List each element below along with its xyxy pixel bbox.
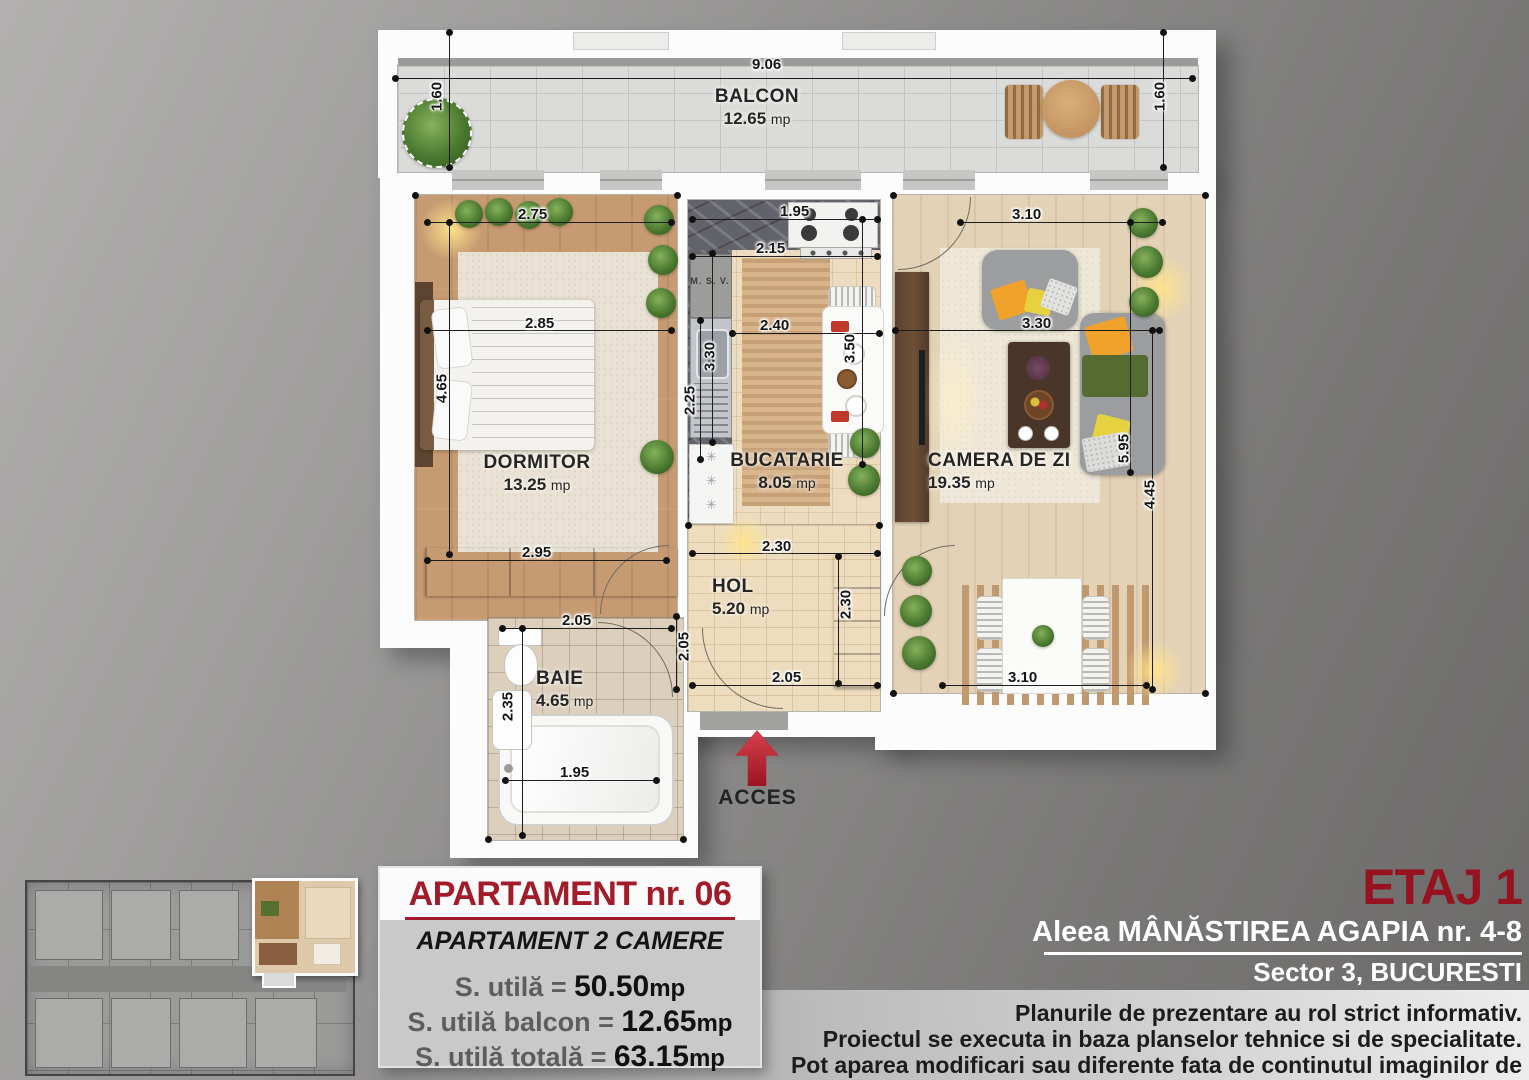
dim-dot xyxy=(674,192,681,199)
plant xyxy=(1129,287,1159,317)
tv-glow xyxy=(925,330,985,470)
entry-threshold xyxy=(700,712,788,730)
dim-label-dormitor-top: 2.75 xyxy=(518,206,547,223)
dim-label-hol-top: 2.30 xyxy=(762,538,791,555)
dim-label-dormitor-bottom: 2.95 xyxy=(522,544,551,561)
dim-label-living-inner: 5.95 xyxy=(1116,427,1133,471)
overview-highlight-baie xyxy=(259,943,297,965)
dim-label-living-outer: 4.45 xyxy=(1142,473,1159,517)
burner xyxy=(801,225,817,241)
apartment-info-box: APARTAMENT nr. 06 APARTAMENT 2 CAMERE S.… xyxy=(378,866,762,1068)
dim-label-bucatarie-right: 3.50 xyxy=(842,327,859,371)
table-plant xyxy=(1032,625,1054,647)
bowl xyxy=(837,369,857,389)
overview-room xyxy=(255,998,317,1068)
area-row-utila: S. utilă = 50.50mp xyxy=(380,970,760,1005)
floor-plan-overview-thumbnail xyxy=(15,872,363,1078)
dim-label-bucatarie-left-lower: 2.25 xyxy=(682,379,699,423)
msv-label: M. S. V. xyxy=(688,276,732,286)
address-underline xyxy=(1044,952,1522,955)
window xyxy=(600,170,662,190)
dim-line xyxy=(449,32,450,168)
disclaimer-line-1: Planurile de prezentare au rol strict in… xyxy=(760,1000,1522,1026)
overview-highlight-tail xyxy=(262,973,296,988)
balcony-post xyxy=(573,32,669,50)
plant xyxy=(646,288,676,318)
overview-room xyxy=(179,998,247,1068)
dim-label-hol-bottom: 2.05 xyxy=(772,669,801,686)
cup xyxy=(1018,426,1033,441)
dim-label-balcony-width: 9.06 xyxy=(752,56,781,73)
overview-room xyxy=(35,998,103,1068)
plant xyxy=(455,200,483,228)
throw-green xyxy=(1082,355,1148,397)
dim-label-baie-left: 2.35 xyxy=(500,685,517,729)
apartment-type-subtitle: APARTAMENT 2 CAMERE xyxy=(380,927,760,956)
dim-label-bucatarie-mid: 2.40 xyxy=(760,317,789,334)
dim-label-bucatarie-counter: 2.15 xyxy=(756,240,785,257)
plant xyxy=(900,595,932,627)
overview-highlighted-apartment xyxy=(252,878,358,976)
floor-title: ETAJ 1 xyxy=(760,860,1522,914)
balcony-chair xyxy=(1004,84,1044,140)
dim-dot xyxy=(876,522,883,529)
apartment-number-title: APARTAMENT nr. 06 xyxy=(380,875,760,914)
overview-highlight-living xyxy=(305,887,351,939)
dining-chair xyxy=(976,596,1004,640)
dim-label-living-top: 3.10 xyxy=(1012,206,1041,223)
dim-dot xyxy=(1202,192,1209,199)
area-row-totala: S. utilă totală = 63.15mp xyxy=(380,1040,760,1075)
dim-line xyxy=(427,222,672,223)
area-summary: S. utilă = 50.50mp S. utilă balcon = 12.… xyxy=(380,970,760,1075)
dim-label-living-bottom: 3.10 xyxy=(1008,669,1037,686)
vase xyxy=(1026,356,1050,380)
balcony-rail xyxy=(398,58,1198,66)
project-city: Sector 3, BUCURESTI xyxy=(760,957,1522,988)
dim-label-dormitor-bed: 2.85 xyxy=(525,315,554,332)
pillow xyxy=(430,306,473,370)
dim-dot xyxy=(412,192,419,199)
dim-dot xyxy=(890,192,897,199)
disclaimer-line-2: Proiectul se executa in baza planselor t… xyxy=(760,1026,1522,1052)
window xyxy=(452,170,544,190)
overview-room xyxy=(35,890,103,960)
title-underline xyxy=(405,917,735,920)
coffee-table xyxy=(1008,342,1070,448)
fruit-bowl xyxy=(1024,390,1054,420)
room-label-bucatarie: BUCATARIE 8.05 mp xyxy=(712,450,862,493)
room-label-baie: BAIE 4.65 mp xyxy=(528,668,646,711)
room-label-dormitor: DORMITOR 13.25 mp xyxy=(462,452,612,495)
dim-label-baie-tub: 1.95 xyxy=(560,764,589,781)
dim-label-hol-right: 2.30 xyxy=(838,583,855,627)
placemat xyxy=(831,411,849,422)
cup xyxy=(1044,426,1059,441)
access-label: ACCES xyxy=(705,786,810,810)
room-label-camera-de-zi: CAMERA DE ZI 19.35 mp xyxy=(928,450,1113,493)
balcony-chair xyxy=(1100,84,1140,140)
bathtub-tap xyxy=(504,764,513,773)
dim-label-bucatarie-left-upper: 3.30 xyxy=(702,335,719,379)
dishwasher xyxy=(690,254,732,318)
dim-dot xyxy=(485,836,492,843)
project-address: Aleea MÂNĂSTIREA AGAPIA nr. 4-8 xyxy=(760,916,1522,949)
balcony-door-sill xyxy=(903,170,975,190)
dining-chair xyxy=(1082,596,1110,640)
dim-dot xyxy=(680,836,687,843)
dim-label-balcony-right: 1.60 xyxy=(1152,75,1169,119)
room-label-balcon: BALCON 12.65 mp xyxy=(687,86,827,129)
plant xyxy=(648,245,678,275)
disclaimer-text: Planurile de prezentare au rol strict in… xyxy=(760,1000,1522,1080)
area-row-balcon: S. utilă balcon = 12.65mp xyxy=(380,1005,760,1040)
window xyxy=(765,170,861,190)
dim-line xyxy=(862,219,863,465)
disclaimer-line-3: Pot aparea modificari sau diferente fata… xyxy=(760,1052,1522,1080)
dim-dot xyxy=(1202,690,1209,697)
project-info-panel: ETAJ 1 Aleea MÂNĂSTIREA AGAPIA nr. 4-8 S… xyxy=(760,860,1522,1072)
dim-line xyxy=(395,78,1193,79)
room-label-hol: HOL 5.20 mp xyxy=(712,576,802,619)
balcony-post xyxy=(842,32,936,50)
dim-label-bucatarie-top: 1.95 xyxy=(780,203,809,220)
flyer-canvas: DORMITOR 13.25 mp M. S. V. ✳✳✳ BUCATARIE… xyxy=(0,0,1529,1080)
overview-room xyxy=(111,890,171,960)
tv-unit xyxy=(895,272,929,522)
burner xyxy=(843,225,859,241)
dim-label-hol-left: 2.05 xyxy=(676,625,693,669)
dim-label-living-mid: 3.30 xyxy=(1022,315,1051,332)
dim-line xyxy=(942,685,1147,686)
balcony-table xyxy=(1042,80,1100,138)
dim-dot xyxy=(890,690,897,697)
overview-room xyxy=(179,890,239,960)
overview-room xyxy=(111,998,171,1068)
dim-label-dormitor-height: 4.65 xyxy=(434,367,451,411)
dim-line xyxy=(522,628,523,836)
window xyxy=(1090,170,1168,190)
overview-highlight-table xyxy=(313,943,341,965)
plant xyxy=(640,440,674,474)
plant xyxy=(1131,246,1163,278)
dim-label-balcony-left: 1.60 xyxy=(429,75,446,119)
plant xyxy=(902,636,936,670)
overview-highlight-bed xyxy=(261,901,279,916)
dim-dot xyxy=(685,522,692,529)
dim-label-baie-top: 2.05 xyxy=(562,612,591,629)
plant xyxy=(902,556,932,586)
